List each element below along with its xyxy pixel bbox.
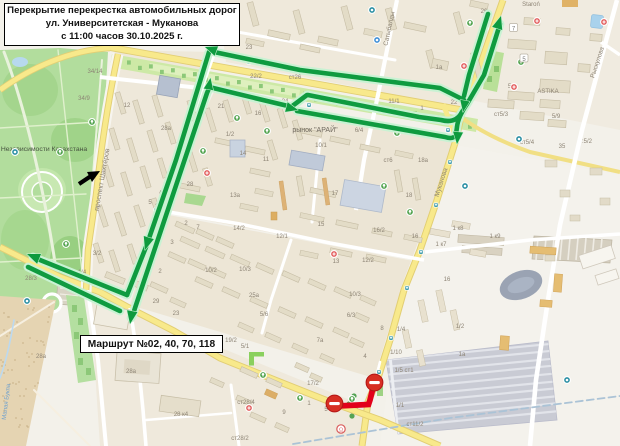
svg-text:17: 17 bbox=[332, 191, 339, 197]
svg-text:34/9: 34/9 bbox=[78, 96, 90, 102]
svg-text:Staroń: Staroń bbox=[522, 2, 540, 8]
svg-text:12/1: 12/1 bbox=[276, 234, 288, 240]
svg-text:19/2: 19/2 bbox=[225, 338, 237, 344]
svg-text:1 к7: 1 к7 bbox=[436, 242, 448, 248]
svg-text:14/2: 14/2 bbox=[233, 226, 245, 232]
svg-text:5/6: 5/6 bbox=[260, 312, 269, 318]
svg-text:28/3: 28/3 bbox=[25, 276, 37, 282]
svg-text:1/1: 1/1 bbox=[396, 403, 405, 409]
svg-text:10/1: 10/1 bbox=[315, 143, 327, 149]
svg-text:1/2: 1/2 bbox=[456, 324, 465, 330]
svg-text:16: 16 bbox=[444, 277, 451, 283]
svg-text:ASTIKA: ASTIKA bbox=[537, 89, 558, 95]
svg-text:22/2: 22/2 bbox=[250, 74, 262, 80]
svg-text:28 к4: 28 к4 bbox=[174, 412, 189, 418]
svg-text:12/2: 12/2 bbox=[362, 258, 374, 264]
svg-text:29: 29 bbox=[153, 299, 160, 305]
svg-text:14: 14 bbox=[240, 151, 247, 157]
svg-text:1 к9: 1 к9 bbox=[490, 234, 502, 240]
svg-text:11/1: 11/1 bbox=[388, 99, 400, 105]
svg-text:6/3: 6/3 bbox=[347, 313, 356, 319]
svg-text:28a: 28a bbox=[126, 369, 137, 375]
svg-text:Ω: Ω bbox=[339, 428, 343, 434]
svg-text:1/10: 1/10 bbox=[390, 350, 402, 356]
svg-text:1/2: 1/2 bbox=[226, 132, 235, 138]
svg-text:21: 21 bbox=[218, 104, 225, 110]
svg-text:ст5/3: ст5/3 bbox=[494, 112, 509, 118]
svg-text:ст11/2: ст11/2 bbox=[407, 422, 425, 428]
svg-text:25a: 25a bbox=[249, 293, 260, 299]
svg-text:ст6: ст6 bbox=[383, 158, 393, 164]
svg-text:34/14: 34/14 bbox=[87, 69, 103, 75]
svg-text:23: 23 bbox=[246, 45, 253, 51]
svg-text:16: 16 bbox=[255, 111, 262, 117]
svg-text:17/2: 17/2 bbox=[307, 381, 319, 387]
svg-text:28: 28 bbox=[187, 182, 194, 188]
svg-text:ст26: ст26 bbox=[289, 75, 302, 81]
svg-text:10/2: 10/2 bbox=[205, 268, 217, 274]
svg-text:13: 13 bbox=[333, 259, 340, 265]
svg-text:ст28/2: ст28/2 bbox=[231, 436, 249, 442]
svg-text:5/9: 5/9 bbox=[552, 114, 561, 120]
svg-text:35: 35 bbox=[559, 144, 566, 150]
svg-text::5/2: :5/2 bbox=[582, 139, 593, 145]
svg-text:6/4: 6/4 bbox=[355, 128, 364, 134]
svg-text:10/3: 10/3 bbox=[349, 292, 361, 298]
svg-text:16: 16 bbox=[412, 234, 419, 240]
svg-text:28a: 28a bbox=[161, 126, 172, 132]
svg-text:28a: 28a bbox=[36, 354, 47, 360]
svg-text:1/5 ст1: 1/5 ст1 bbox=[394, 368, 414, 374]
svg-text:18: 18 bbox=[406, 193, 413, 199]
svg-text:13a: 13a bbox=[230, 193, 241, 199]
svg-text:16/2: 16/2 bbox=[373, 228, 385, 234]
svg-text:рынок "АРАЙ": рынок "АРАЙ" bbox=[292, 125, 338, 134]
svg-text:23: 23 bbox=[173, 311, 180, 317]
svg-text:1a: 1a bbox=[436, 65, 443, 71]
svg-text:18a: 18a bbox=[418, 158, 429, 164]
svg-text:10/3: 10/3 bbox=[239, 267, 251, 273]
svg-text:12: 12 bbox=[124, 103, 131, 109]
svg-text:1 к8: 1 к8 bbox=[453, 226, 465, 232]
svg-text:1/4: 1/4 bbox=[397, 327, 406, 333]
svg-text:11: 11 bbox=[263, 157, 270, 163]
svg-text:5/1: 5/1 bbox=[241, 344, 250, 350]
svg-text:15: 15 bbox=[318, 222, 325, 228]
svg-text:1а: 1а bbox=[459, 352, 466, 358]
svg-text:3/2: 3/2 bbox=[93, 251, 102, 257]
svg-text:7а: 7а bbox=[317, 338, 324, 344]
